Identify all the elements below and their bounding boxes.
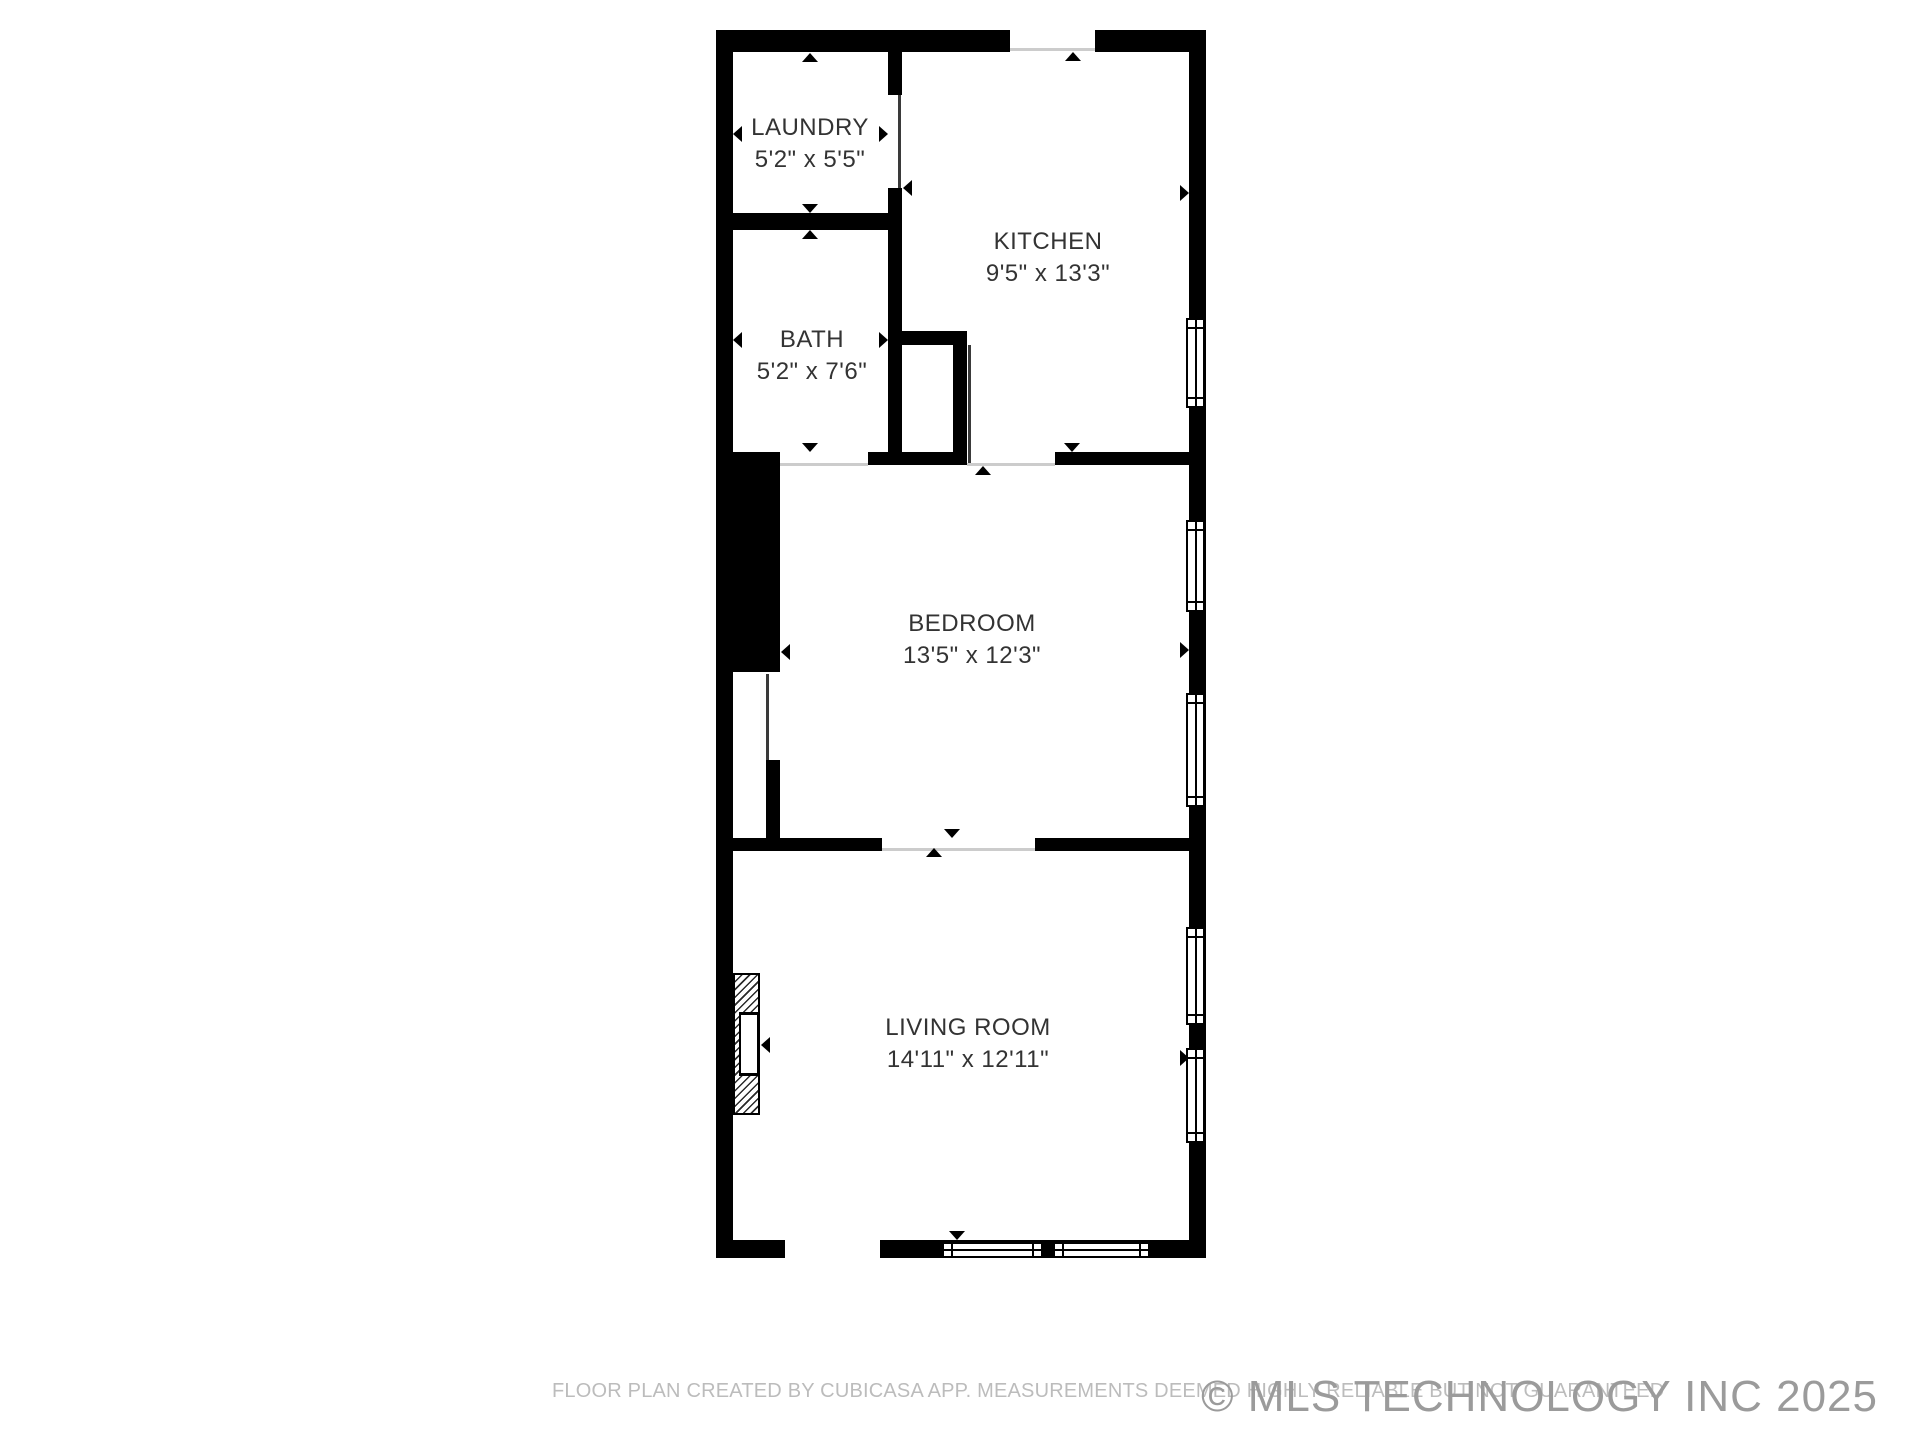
window-frame-line — [1188, 702, 1203, 704]
kitchen-window — [1186, 318, 1205, 408]
window-center-line — [1195, 695, 1197, 805]
exterior-wall-bottom-left-segment — [716, 1240, 785, 1258]
window-frame-line — [1139, 1244, 1141, 1256]
window-center-line — [1195, 1050, 1197, 1141]
window-center-line — [1055, 1249, 1148, 1251]
room-name: LAUNDRY — [650, 112, 970, 144]
wall-laundry-bath-horizontal — [716, 213, 902, 230]
arrow-down-icon — [802, 204, 818, 213]
arrow-left-icon — [781, 644, 790, 660]
arrow-right-icon — [1180, 185, 1189, 201]
fireplace — [733, 973, 760, 1115]
room-dimensions: 5'2" x 5'5" — [650, 144, 970, 176]
room-name: LIVING ROOM — [808, 1012, 1128, 1044]
room-name: KITCHEN — [888, 226, 1208, 258]
window-center-line — [1195, 929, 1197, 1023]
bottom-wall-window-mullion — [1043, 1240, 1053, 1258]
window-frame-line — [1188, 1132, 1203, 1134]
window-frame-line — [1032, 1244, 1034, 1256]
room-label-kitchen: KITCHEN 9'5" x 13'3" — [888, 226, 1208, 290]
room-dimensions: 14'11" x 12'11" — [808, 1044, 1128, 1076]
room-dimensions: 9'5" x 13'3" — [888, 258, 1208, 290]
floor-plan: LAUNDRY 5'2" x 5'5" KITCHEN 9'5" x 13'3"… — [0, 0, 1920, 1440]
arrow-up-icon — [802, 230, 818, 239]
mls-copyright-watermark: © MLS TECHNOLOGY INC 2025 — [1201, 1372, 1878, 1422]
window-center-line — [1195, 320, 1197, 406]
window-frame-line — [1188, 601, 1203, 603]
room-label-laundry: LAUNDRY 5'2" x 5'5" — [650, 112, 970, 176]
living-room-window-bottom-left — [942, 1242, 1043, 1258]
opening-line-bath-door — [780, 463, 868, 466]
arrow-right-icon — [1180, 642, 1189, 658]
arrow-down-icon — [802, 443, 818, 452]
wall-bedroom-top-middle-segment — [868, 452, 967, 465]
room-label-bath: BATH 5'2" x 7'6" — [652, 324, 972, 388]
window-frame-line — [1188, 327, 1203, 329]
wall-laundry-kitchen-upper — [888, 52, 902, 95]
wall-bedroom-bottom-right-segment — [1035, 838, 1189, 851]
window-frame-line — [1188, 397, 1203, 399]
arrow-left-icon — [761, 1037, 770, 1053]
right-wall-window-mullion — [1189, 1025, 1206, 1048]
arrow-up-icon — [802, 53, 818, 62]
arrow-left-icon — [903, 180, 912, 196]
window-frame-line — [1188, 796, 1203, 798]
window-frame-line — [1188, 1014, 1203, 1016]
room-name: BEDROOM — [812, 608, 1132, 640]
opening-line-bedroom-living-door — [882, 848, 1035, 851]
room-name: BATH — [652, 324, 972, 356]
closet-wall-mass — [716, 452, 780, 672]
bedroom-window-upper — [1186, 520, 1205, 612]
arrow-up-icon — [926, 848, 942, 857]
window-frame-line — [951, 1244, 953, 1256]
wall-bedroom-bottom-left-segment — [716, 838, 882, 851]
room-label-bedroom: BEDROOM 13'5" x 12'3" — [812, 608, 1132, 672]
bedroom-window-lower — [1186, 693, 1205, 807]
arrow-up-icon — [1065, 52, 1081, 61]
opening-line-front-entry-top — [1010, 48, 1095, 51]
closet-door-panel-line — [766, 674, 769, 760]
window-frame-line — [1062, 1244, 1064, 1256]
living-room-window-right-upper — [1186, 927, 1205, 1025]
window-center-line — [1195, 522, 1197, 610]
arrow-down-icon — [944, 829, 960, 838]
closet-stub-wall — [766, 760, 780, 840]
arrow-down-icon — [1064, 443, 1080, 452]
wall-bedroom-top-right-segment — [1055, 452, 1189, 465]
arrow-right-icon — [1180, 1050, 1189, 1066]
window-center-line — [944, 1249, 1041, 1251]
window-frame-line — [1188, 936, 1203, 938]
room-label-living-room: LIVING ROOM 14'11" x 12'11" — [808, 1012, 1128, 1076]
fireplace-firebox — [739, 1012, 759, 1076]
room-dimensions: 5'2" x 7'6" — [652, 356, 972, 388]
window-frame-line — [1188, 529, 1203, 531]
room-dimensions: 13'5" x 12'3" — [812, 640, 1132, 672]
arrow-down-icon — [949, 1231, 965, 1240]
window-frame-line — [1188, 1057, 1203, 1059]
exterior-wall-top-left-segment — [716, 30, 1010, 52]
living-room-window-bottom-right — [1053, 1242, 1150, 1258]
arrow-up-icon — [975, 466, 991, 475]
